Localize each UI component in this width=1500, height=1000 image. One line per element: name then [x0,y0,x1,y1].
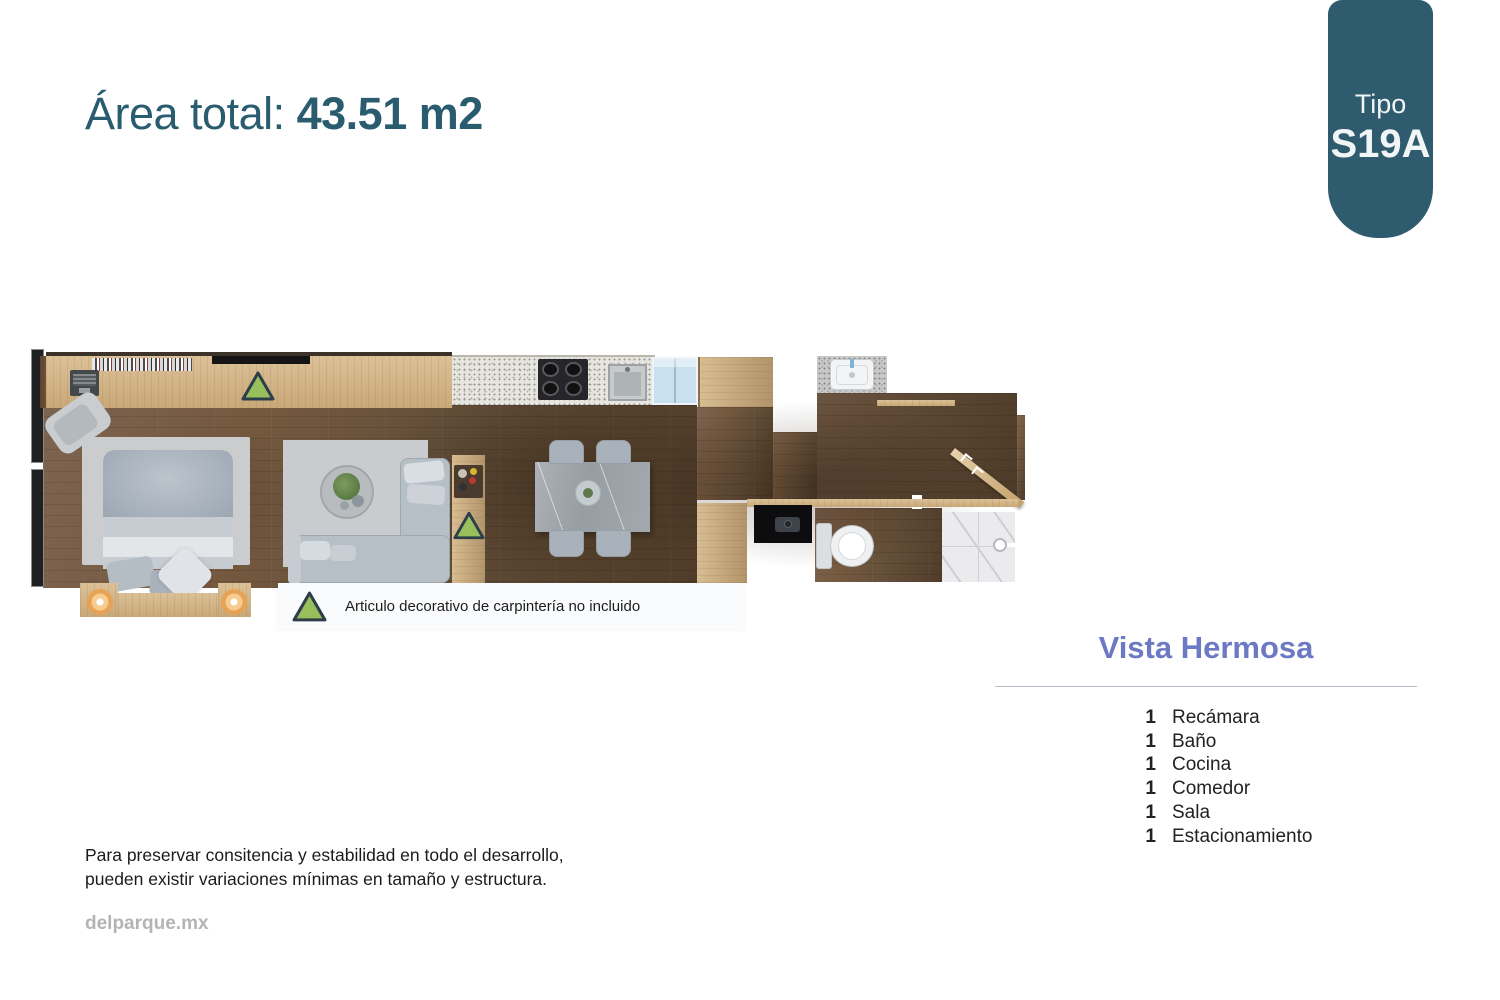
bathroom-cabinet [697,503,747,583]
sofa-pillow [406,484,445,506]
kitchen-sink [608,364,647,401]
area-label: Área total: [85,88,297,139]
legend-text: Articulo decorativo de carpintería no in… [345,598,640,615]
decor-marker-icon [292,591,327,622]
list-item: 1Cocina [1140,754,1312,778]
refrigerator [652,357,698,405]
floor-plan: Articulo decorativo de carpintería no in… [30,345,1030,630]
table-centerpiece [575,480,601,506]
bed-blanket-fold [103,537,233,557]
stove [538,359,588,400]
window [31,469,44,587]
toilet-bowl [830,525,874,567]
hallway-floor [697,407,773,500]
brochure-page: Área total: 43.51 m2 Tipo S19A [0,0,1500,1000]
bathroom-sink [830,359,874,390]
sofa-pillow [300,541,330,560]
list-item: 1Recámara [1140,706,1312,730]
coffee-table-decor [352,495,364,507]
books-row [92,358,192,371]
dining-chair [596,530,631,557]
table-lamp [86,588,114,616]
badge-tipo-label: Tipo [1355,89,1407,120]
coffee-table-decor [340,501,349,510]
decor-marker-icon [453,511,485,540]
feature-list: 1Recámara 1Baño 1Cocina 1Comedor 1Sala 1… [1140,706,1312,849]
dining-chair [549,530,584,557]
shower-drain [993,538,1007,552]
hallway-floor [817,393,1017,500]
bed-pillow-top [103,450,233,522]
list-item: 1Sala [1140,801,1312,825]
list-item: 1Baño [1140,730,1312,754]
sofa-pillow [330,545,356,561]
list-item: 1Comedor [1140,777,1312,801]
list-item: 1Estacionamiento [1140,825,1312,849]
page-title: Área total: 43.51 m2 [85,88,483,140]
dining-chair [549,440,584,464]
badge-unit-code: S19A [1330,122,1430,167]
cabinet-decor-tray [454,465,483,498]
area-value: 43.51 m2 [297,88,483,139]
dining-chair [596,440,631,464]
bed-bench [118,593,218,617]
hallway-floor [1017,415,1025,500]
website-url: delparque.mx [85,913,209,935]
decor-marker-icon [241,371,275,401]
sofa-pillow [403,460,445,484]
tv [754,505,812,543]
door-lintel [877,400,955,406]
hallway-floor [773,432,817,500]
shelf-recess [212,356,310,364]
disclaimer-text: Para preservar consitencia y estabilidad… [85,843,564,891]
development-name: Vista Hermosa [995,630,1417,666]
closet [698,357,773,407]
legend-box: Articulo decorativo de carpintería no in… [278,583,745,629]
divider-line [995,686,1417,687]
sofa-armrest [288,533,301,585]
unit-type-badge: Tipo S19A [1328,0,1433,238]
shower-drain-line [1007,543,1016,547]
table-lamp [220,588,248,616]
